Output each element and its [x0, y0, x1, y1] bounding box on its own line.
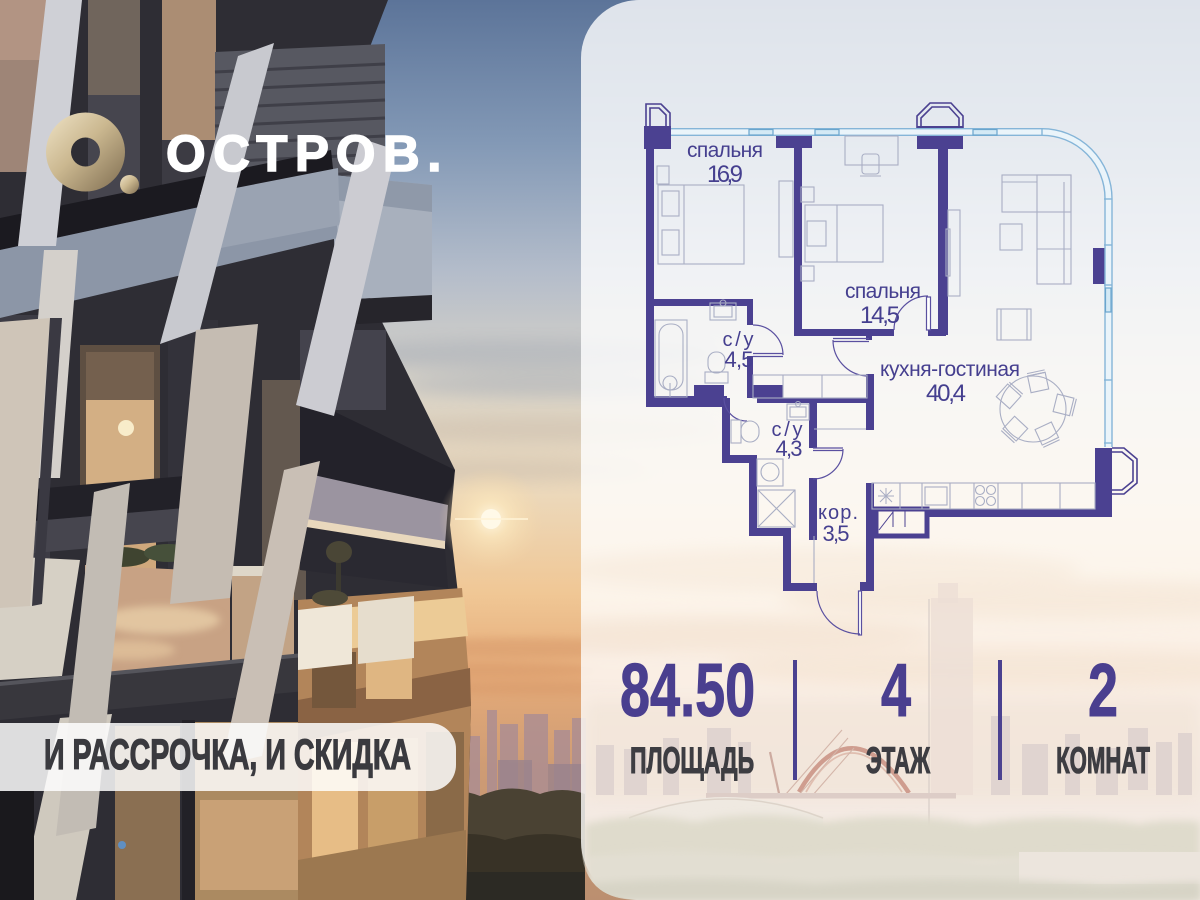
svg-text:спальня: спальня	[687, 139, 763, 162]
svg-text:4,5: 4,5	[725, 347, 754, 372]
svg-text:4,3: 4,3	[776, 436, 803, 461]
svg-text:14,5: 14,5	[860, 302, 900, 329]
svg-text:16,9: 16,9	[707, 161, 743, 188]
svg-text:3,5: 3,5	[823, 521, 850, 546]
svg-text:кухня-гостиная: кухня-гостиная	[880, 358, 1020, 381]
svg-text:40,4: 40,4	[926, 380, 966, 407]
svg-text:спальня: спальня	[845, 280, 921, 303]
